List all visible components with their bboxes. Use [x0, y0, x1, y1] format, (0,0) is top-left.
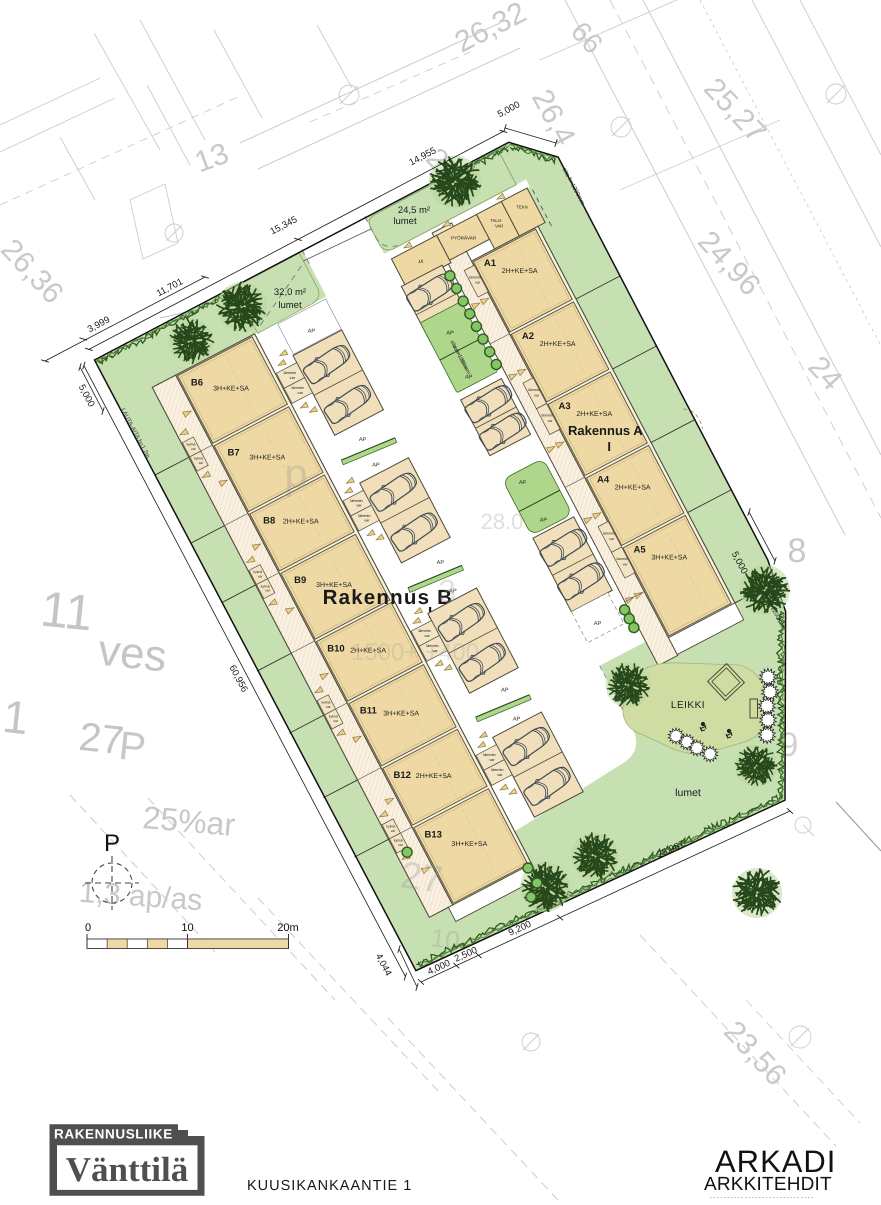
svg-text:B13: B13 — [425, 829, 442, 840]
svg-text:AP: AP — [513, 716, 521, 722]
svg-text:B10: B10 — [327, 643, 344, 654]
svg-text:lämmin: lämmin — [528, 388, 540, 392]
svg-text:AP: AP — [519, 480, 527, 486]
svg-text:8: 8 — [788, 532, 807, 570]
svg-text:var: var — [497, 773, 503, 777]
svg-text:var: var — [534, 393, 540, 397]
svg-text:lumet: lumet — [675, 787, 701, 799]
svg-text:lämmin: lämmin — [603, 532, 615, 536]
svg-text:Rakennus A: Rakennus A — [568, 423, 643, 438]
svg-text:2H+KE+SA: 2H+KE+SA — [502, 268, 538, 275]
svg-text:2H+KE+SA: 2H+KE+SA — [283, 519, 319, 526]
svg-text:p: p — [284, 450, 307, 497]
svg-text:RAKENNUSLIIKE: RAKENNUSLIIKE — [54, 1127, 173, 1142]
svg-text:20m: 20m — [277, 922, 298, 934]
svg-text:lämmin: lämmin — [284, 371, 296, 375]
svg-text:28.0: 28.0 — [481, 509, 524, 534]
svg-text:I: I — [607, 439, 611, 454]
svg-text:B7: B7 — [227, 447, 239, 458]
svg-text:B6: B6 — [191, 377, 203, 388]
svg-text:2H+KE+SA: 2H+KE+SA — [615, 484, 651, 491]
svg-text:lämmin: lämmin — [358, 514, 370, 518]
svg-text:A4: A4 — [597, 474, 610, 485]
svg-text:lumet: lumet — [393, 216, 417, 227]
svg-text:lämmin: lämmin — [292, 386, 304, 390]
svg-text:LEIKKI: LEIKKI — [671, 700, 705, 711]
svg-text:A1: A1 — [484, 258, 497, 269]
svg-text:2H+KE+SA: 2H+KE+SA — [576, 411, 612, 418]
svg-text:kylmä: kylmä — [187, 442, 196, 446]
svg-text:JÄ: JÄ — [418, 259, 424, 264]
svg-text:kylmä: kylmä — [329, 715, 338, 719]
svg-text:A2: A2 — [522, 331, 534, 342]
svg-text:lämmin: lämmin — [418, 629, 430, 633]
svg-text:B12: B12 — [393, 770, 410, 781]
svg-text:lumet: lumet — [278, 300, 302, 311]
svg-text:lämmin: lämmin — [617, 557, 629, 561]
svg-text:VAR: VAR — [495, 223, 503, 228]
svg-text:AP: AP — [501, 688, 509, 694]
svg-text:32,0 m²: 32,0 m² — [274, 287, 306, 298]
svg-text:2H+KE+SA: 2H+KE+SA — [416, 773, 452, 780]
svg-text:ves: ves — [96, 626, 169, 682]
svg-text:var: var — [475, 281, 481, 285]
svg-text:1500+ +400: 1500+ +400 — [351, 639, 479, 666]
svg-text:kylmä: kylmä — [386, 824, 395, 828]
svg-text:KUUSIKANKAANTIE 1: KUUSIKANKAANTIE 1 — [247, 1178, 412, 1194]
svg-text:lämmin: lämmin — [469, 275, 481, 279]
svg-text:B11: B11 — [360, 705, 378, 716]
svg-text:var: var — [298, 391, 304, 395]
svg-text:A3: A3 — [559, 401, 571, 412]
svg-text:kylmä: kylmä — [253, 570, 262, 574]
svg-text:3H+KE+SA: 3H+KE+SA — [451, 841, 487, 848]
svg-text:B8: B8 — [263, 516, 275, 527]
svg-text:3H+KE+SA: 3H+KE+SA — [213, 385, 249, 392]
svg-text:3H+KE+SA: 3H+KE+SA — [651, 554, 687, 561]
svg-text:var: var — [364, 519, 370, 523]
svg-text:var: var — [356, 504, 362, 508]
svg-text:lämmin: lämmin — [350, 499, 362, 503]
svg-text:3H+KE+SA: 3H+KE+SA — [383, 711, 419, 718]
svg-text:var: var — [290, 376, 296, 380]
svg-text:AP: AP — [437, 560, 445, 566]
svg-text:var: var — [424, 634, 430, 638]
svg-text:TALO-: TALO- — [490, 218, 503, 223]
svg-text:var: var — [623, 563, 629, 567]
svg-text:lämmin: lämmin — [483, 753, 495, 757]
svg-text:24,5 m²: 24,5 m² — [398, 205, 430, 216]
svg-text:27: 27 — [398, 854, 446, 901]
svg-text:2H+KE+SA: 2H+KE+SA — [540, 341, 576, 348]
svg-text:TEKN: TEKN — [516, 205, 527, 210]
svg-text:Vänttilä: Vänttilä — [66, 1150, 189, 1189]
svg-text:lämmin: lämmin — [491, 768, 503, 772]
svg-text:kylmä: kylmä — [394, 839, 403, 843]
svg-text:kylmä: kylmä — [261, 584, 270, 588]
svg-text:AP: AP — [308, 328, 316, 334]
svg-text:kylmä: kylmä — [194, 457, 203, 461]
svg-text:B9: B9 — [294, 575, 306, 586]
svg-text:3H+KE+SA: 3H+KE+SA — [249, 454, 285, 461]
svg-text:AP: AP — [594, 621, 602, 627]
svg-text:P: P — [117, 724, 148, 771]
svg-text:P: P — [104, 830, 120, 857]
svg-text:AP: AP — [359, 437, 367, 443]
svg-text:kylmä: kylmä — [321, 700, 330, 704]
svg-text:AP: AP — [465, 375, 473, 381]
svg-text:1: 1 — [0, 690, 31, 744]
svg-text:11: 11 — [38, 581, 95, 642]
svg-text:10: 10 — [181, 922, 193, 934]
svg-text:var: var — [489, 758, 495, 762]
svg-text:PYÖRÄVAR: PYÖRÄVAR — [451, 235, 477, 240]
svg-text:var: var — [548, 419, 554, 423]
svg-text:Rakennus B: Rakennus B — [323, 586, 453, 609]
svg-text:AP: AP — [446, 330, 454, 336]
svg-text:AP: AP — [372, 463, 380, 469]
svg-text:var: var — [609, 537, 615, 541]
svg-text:0: 0 — [85, 922, 91, 934]
svg-text:lämmin: lämmin — [541, 414, 553, 418]
svg-text:AP: AP — [540, 517, 548, 523]
svg-text:3: 3 — [438, 573, 456, 609]
svg-text:A5: A5 — [634, 544, 647, 555]
svg-text:ARKKITEHDIT: ARKKITEHDIT — [704, 1174, 832, 1195]
